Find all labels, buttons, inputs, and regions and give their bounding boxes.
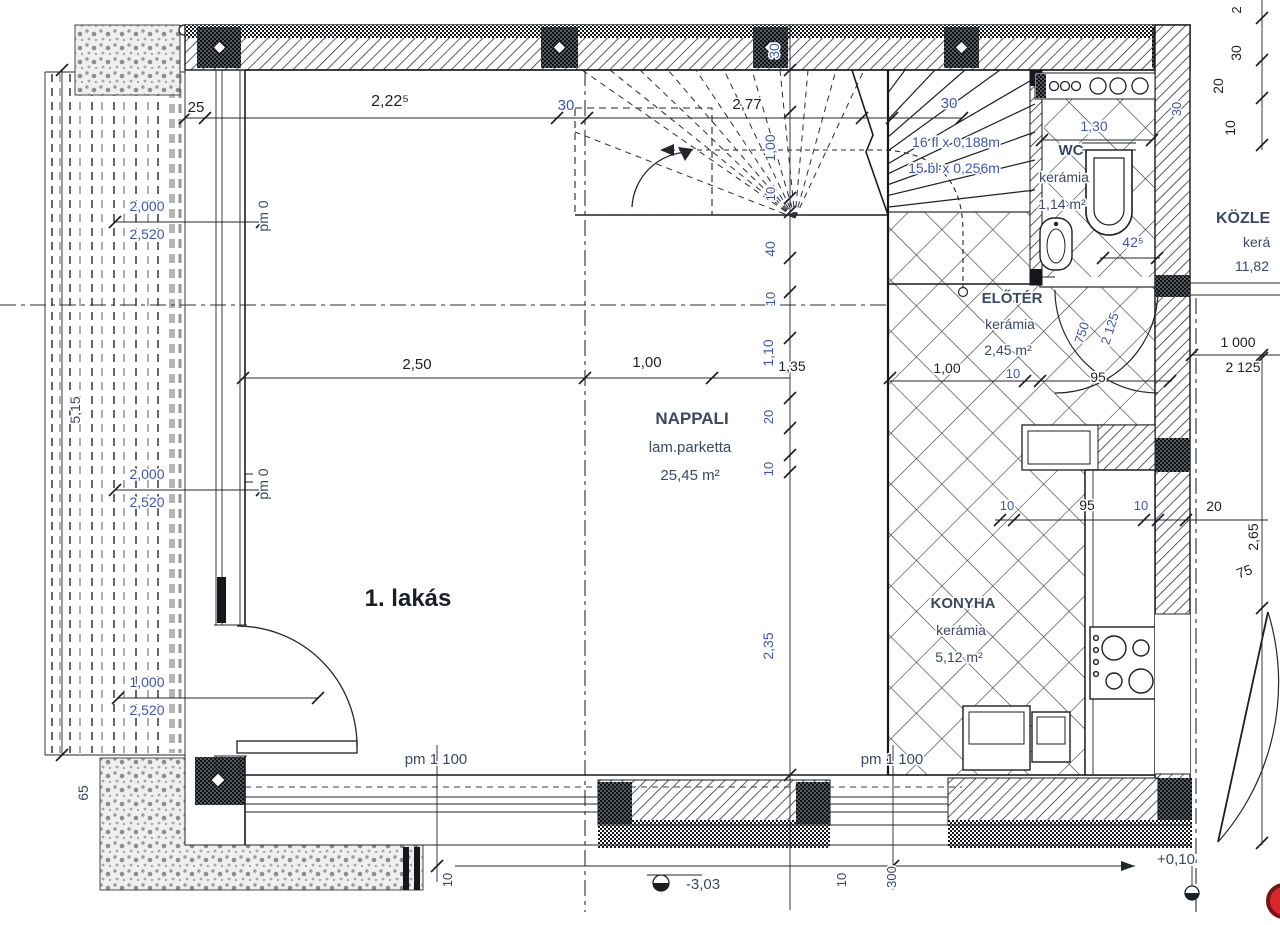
wc-wall-end — [1030, 269, 1042, 285]
room-wc-finish: kerámia — [1039, 169, 1089, 185]
floor-plan-page: 252,22⁵302,77301,30WCkerámia1,14 m²16 fl… — [0, 0, 1280, 925]
dim-el-10: 10 — [1006, 366, 1020, 381]
dim-top-30-left: 30 — [558, 97, 575, 114]
stair-tread-line — [724, 70, 795, 218]
left-2520-b: 2,520 — [129, 494, 164, 510]
room-konyha-area: 5,12 m² — [935, 649, 983, 665]
left-pm0-b: pm 0 — [255, 468, 271, 499]
left-wall — [185, 25, 253, 845]
dim-top-2-22-5: 2,22⁵ — [371, 93, 409, 110]
dim-right-2125: 2 125 — [1225, 359, 1260, 375]
dim-wc-1-30: 1,30 — [1080, 118, 1107, 134]
right-door-opening — [1155, 614, 1190, 774]
dim-k-95: 95 — [1079, 497, 1095, 513]
room-konyha-finish: kerámia — [936, 622, 986, 638]
dim-el-95: 95 — [1090, 369, 1106, 385]
entry-door-swing-arc — [237, 626, 357, 746]
dim-k-10-b: 10 — [1134, 498, 1148, 513]
stipple-block-bottom-left — [100, 758, 423, 890]
room-eloter-name: ELŐTÉR — [982, 289, 1043, 307]
stair-treads-dashed — [575, 70, 864, 218]
stair-up-arrowhead — [678, 147, 693, 161]
dim-right-2-65: 2,65 — [1245, 523, 1261, 550]
stair-up-arrow-arc — [632, 152, 690, 207]
dim-right-1000: 1 000 — [1220, 334, 1255, 350]
wc-shelf-unit — [1035, 73, 1155, 99]
dim-mid-1-00: 1,00 — [632, 354, 661, 371]
room-wc-name: WC — [1059, 142, 1084, 159]
stair-cut-line — [852, 70, 888, 215]
bot-10-left: 10 — [440, 873, 455, 887]
chain-10-c: 10 — [761, 462, 776, 476]
pm-1100-right: pm 1 100 — [861, 751, 924, 768]
right-wall-block — [1155, 438, 1190, 472]
room-eloter-area: 2,45 m² — [984, 342, 1032, 358]
room-wc-area: 1,14 m² — [1038, 196, 1086, 212]
room-kozlekedo-finish: kerá — [1243, 234, 1270, 250]
room-kozlekedo-name: KÖZLE — [1216, 208, 1271, 227]
level-marker-plus-0-10 — [1185, 866, 1199, 900]
right-wall-block — [1155, 275, 1190, 297]
room-nappali-area: 25,45 m² — [660, 467, 719, 484]
room-nappali-name: NAPPALI — [655, 409, 728, 428]
tr-2: 2 — [1229, 6, 1244, 13]
left-65: 65 — [75, 785, 91, 801]
red-stamp-icon — [1268, 885, 1280, 917]
chain-1-00: 1,00 — [762, 134, 778, 161]
pm-1100-left: pm 1 100 — [405, 751, 468, 768]
room-eloter-finish: kerámia — [985, 316, 1035, 332]
chain-2-35: 2,35 — [760, 632, 776, 659]
room-kozlekedo-area: 11,82 — [1235, 258, 1269, 274]
stipple-block-top-left — [75, 25, 180, 95]
bot-10-right: 10 — [834, 873, 849, 887]
dim-1-35: 1,35 — [778, 358, 805, 374]
bottom-left-bar — [414, 847, 420, 890]
level-plus-0-10: +0,10 — [1157, 851, 1195, 868]
tr-30-a: 30 — [1228, 45, 1244, 61]
kitchen-cabinet-inner — [1028, 431, 1090, 464]
stair-treads: 15 bl x 0,256m — [908, 160, 1000, 176]
room-konyha-name: KONYHA — [930, 595, 995, 612]
kitchen-counter — [1085, 470, 1155, 775]
stair-tread-line — [795, 70, 864, 218]
stair-tread-line — [696, 70, 795, 218]
stair-risers: 16 fl x 0,188m — [912, 134, 1000, 150]
kitchen-drainer-inner — [1037, 717, 1065, 744]
room-lakas: 1. lakás — [365, 585, 452, 612]
dim-top-30-right: 30 — [941, 95, 958, 112]
cooktop — [1090, 627, 1155, 699]
stair-landing-dashed — [575, 108, 712, 215]
left-2000-b: 2,000 — [129, 466, 164, 482]
entry-door-leaf — [237, 741, 357, 753]
dim-top-2-77: 2,77 — [732, 96, 761, 113]
dim-right-75: 75 — [1234, 561, 1254, 581]
window-bottom-right — [830, 795, 948, 814]
left-1000: 1,000 — [129, 674, 164, 690]
left-2520-a: 2,520 — [129, 226, 164, 242]
room-nappali-finish: lam.parketta — [649, 439, 732, 456]
level-line-arrowhead — [1121, 861, 1135, 871]
wc-shelf-block — [1036, 74, 1046, 98]
top-wall-outer-band — [185, 25, 1190, 38]
kitchen-sink-bowl — [969, 712, 1024, 744]
chain-20: 20 — [761, 410, 776, 424]
left-5-15: 5,15 — [67, 396, 83, 423]
chain-40: 40 — [762, 241, 778, 257]
kozlekedo-floor-edge — [1190, 283, 1280, 295]
left-pm0-a: pm 0 — [255, 200, 271, 231]
bot-300: 300 — [884, 866, 899, 888]
toilet-bowl-icon — [1094, 158, 1124, 225]
tr-30-b: 30 — [1169, 102, 1184, 116]
tr-10: 10 — [1222, 120, 1238, 136]
tr-20: 20 — [1210, 78, 1226, 94]
right-door-swing-arc — [1218, 612, 1279, 842]
floor-plan-canvas: 252,22⁵302,77301,30WCkerámia1,14 m²16 fl… — [0, 0, 1280, 925]
window-bottom-left — [245, 795, 598, 814]
dim-k-20: 20 — [1206, 498, 1222, 514]
dim-mid-2-50: 2,50 — [402, 356, 431, 373]
bottom-left-bar — [403, 847, 409, 890]
dim-el-1-00: 1,00 — [933, 360, 960, 376]
basin-tap-icon — [1054, 222, 1058, 226]
dim-wc-42-5: 42⁵ — [1122, 234, 1143, 250]
walkline-start-circle — [959, 288, 968, 297]
dim-top-25: 25 — [188, 99, 205, 116]
dim-k-10-a: 10 — [1000, 498, 1014, 513]
chain-1-10: 1,10 — [760, 339, 776, 366]
chain-30-wall: 30 — [766, 43, 782, 59]
level-minus-3-03: -3,03 — [686, 876, 720, 893]
left-2520-c: 2,520 — [129, 702, 164, 718]
chain-10-b: 10 — [763, 292, 778, 306]
left-2000-a: 2,000 — [129, 198, 164, 214]
wc-bottom-wall — [1042, 277, 1160, 287]
kitchen-cabinet-hatch — [1098, 425, 1155, 470]
chain-10-a: 10 — [763, 187, 778, 201]
